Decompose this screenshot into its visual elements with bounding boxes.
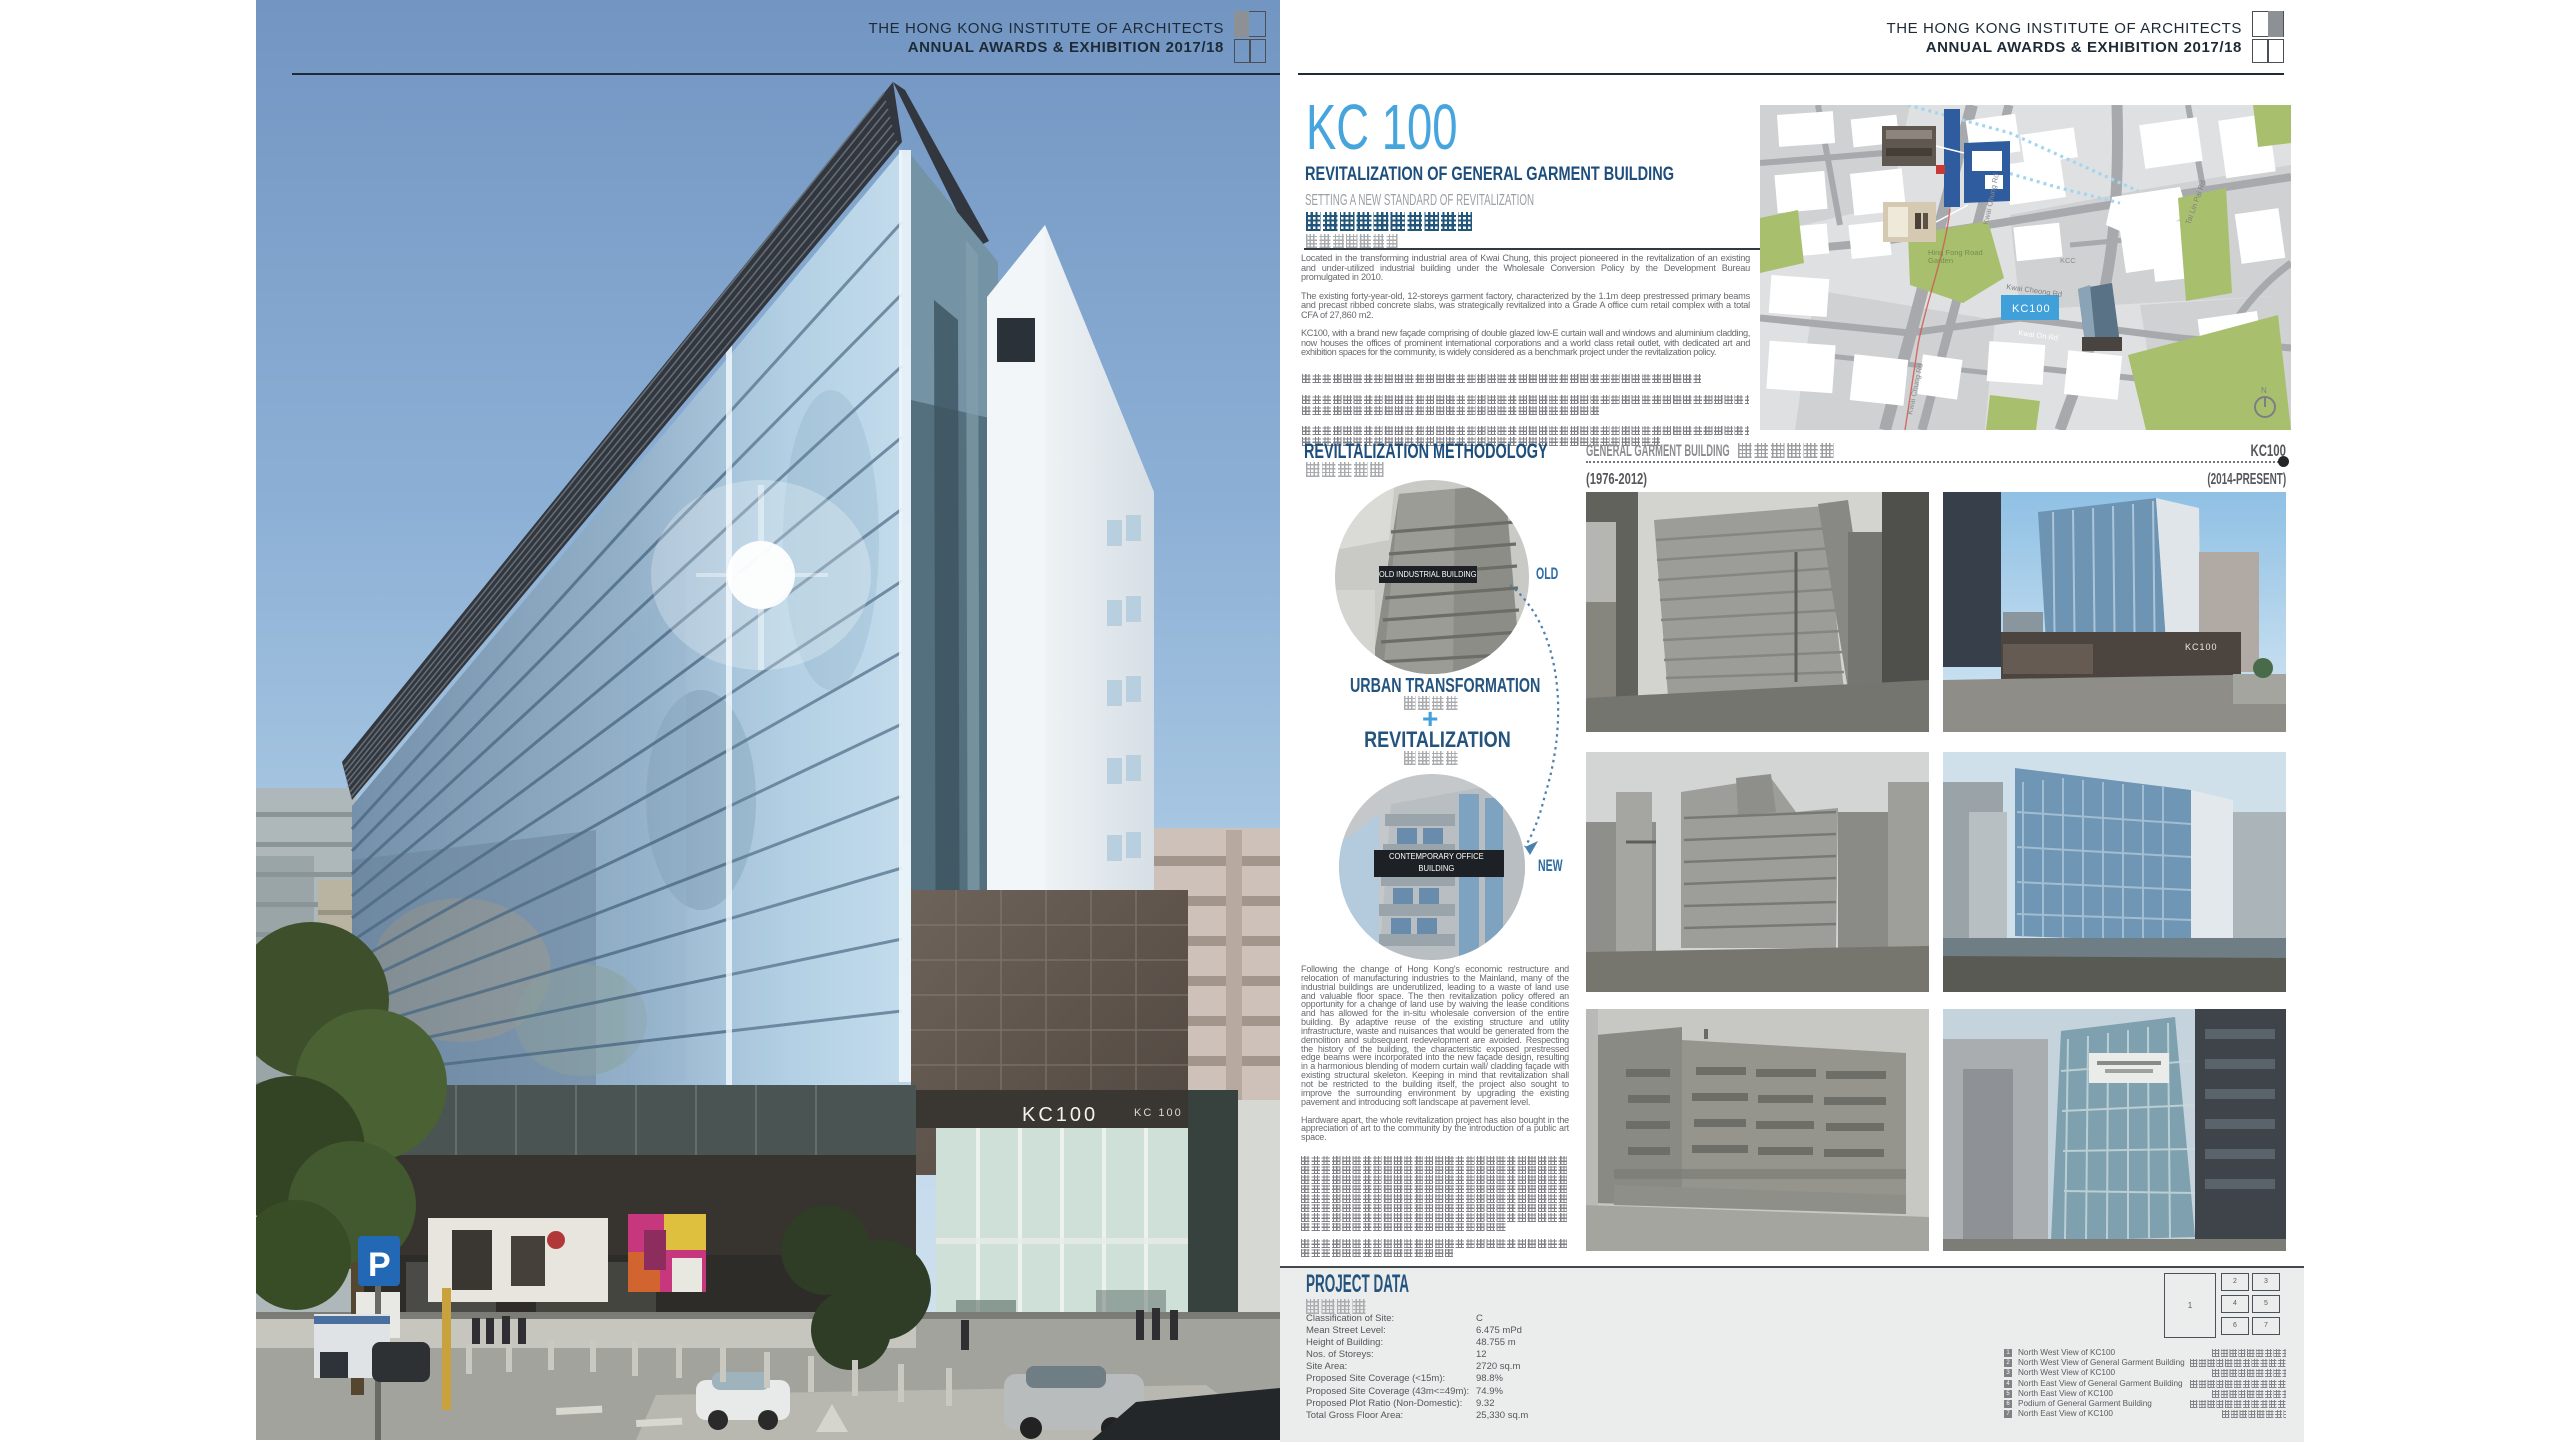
svg-text:KCC: KCC bbox=[2060, 256, 2076, 265]
svg-text:Garden: Garden bbox=[1928, 256, 1953, 265]
svg-text:P: P bbox=[368, 1246, 391, 1284]
svg-text:KC100: KC100 bbox=[2185, 642, 2218, 652]
svg-text:KC100: KC100 bbox=[2012, 303, 2051, 315]
svg-text:KC100: KC100 bbox=[1022, 1104, 1098, 1126]
svg-text:KC 100: KC 100 bbox=[1134, 1107, 1183, 1119]
svg-text:N: N bbox=[2261, 386, 2267, 395]
